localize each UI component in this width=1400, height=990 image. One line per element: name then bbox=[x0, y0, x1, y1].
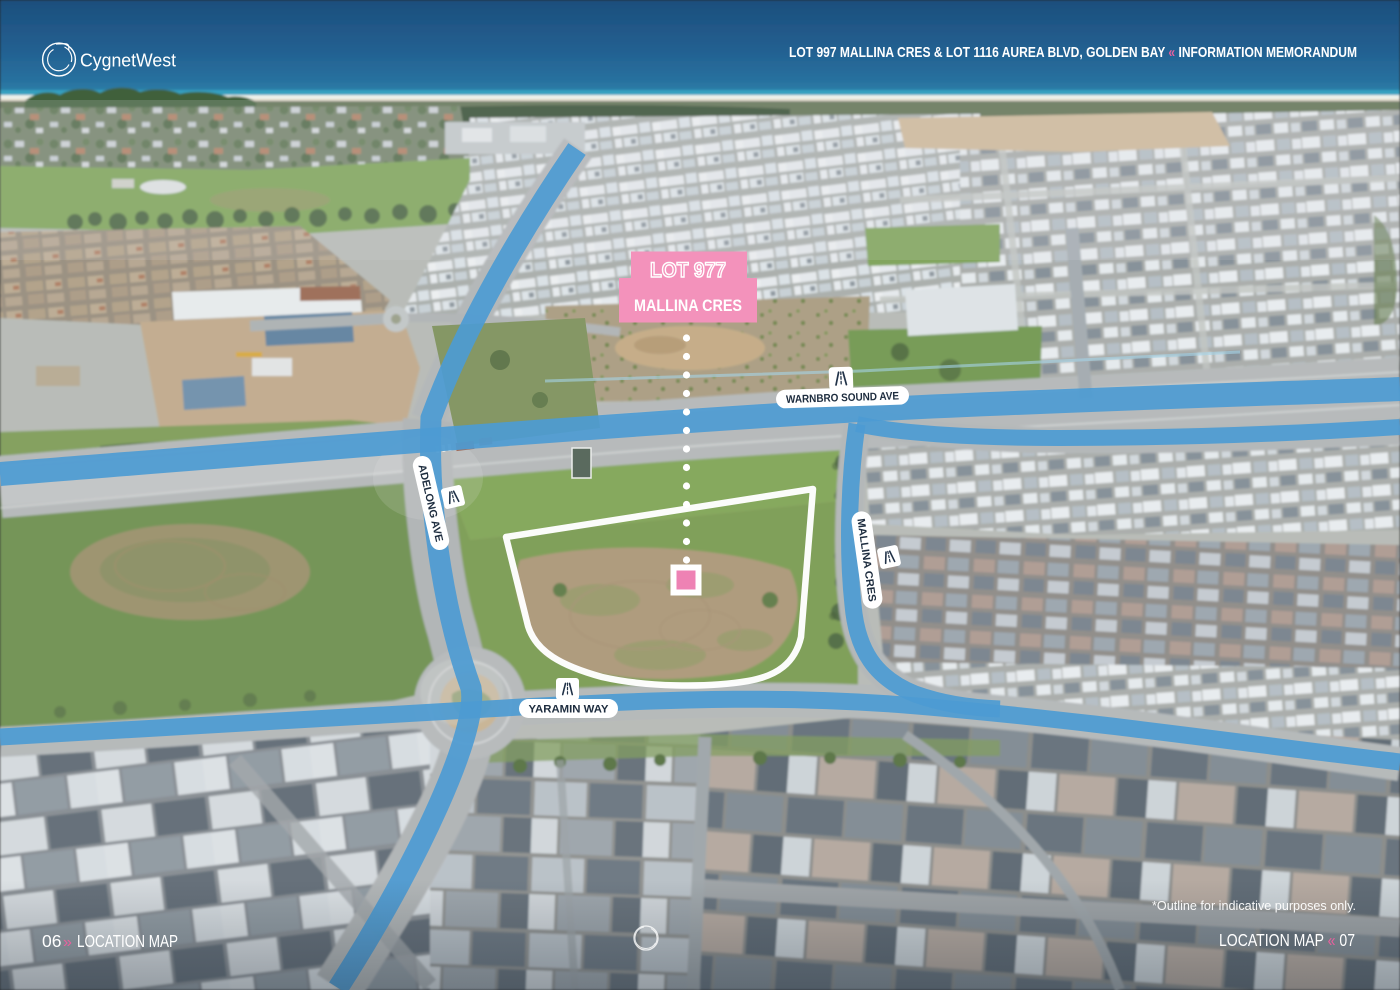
svg-text:LOT 977: LOT 977 bbox=[650, 259, 726, 282]
svg-text:»: » bbox=[63, 934, 72, 951]
svg-text:LOT 997 MALLINA CRES & LOT 111: LOT 997 MALLINA CRES & LOT 1116 AUREA BL… bbox=[789, 44, 1357, 61]
svg-text:MALLINA CRES: MALLINA CRES bbox=[634, 297, 742, 315]
svg-text:CygnetWest: CygnetWest bbox=[80, 50, 176, 71]
svg-text:*Outline for indicative purpos: *Outline for indicative purposes only. bbox=[1152, 898, 1356, 913]
svg-text:YARAMIN WAY: YARAMIN WAY bbox=[529, 704, 610, 716]
svg-text:06: 06 bbox=[42, 931, 61, 951]
svg-text:LOCATION MAP « 07: LOCATION MAP « 07 bbox=[1219, 930, 1355, 950]
svg-text:LOCATION MAP: LOCATION MAP bbox=[77, 931, 178, 951]
